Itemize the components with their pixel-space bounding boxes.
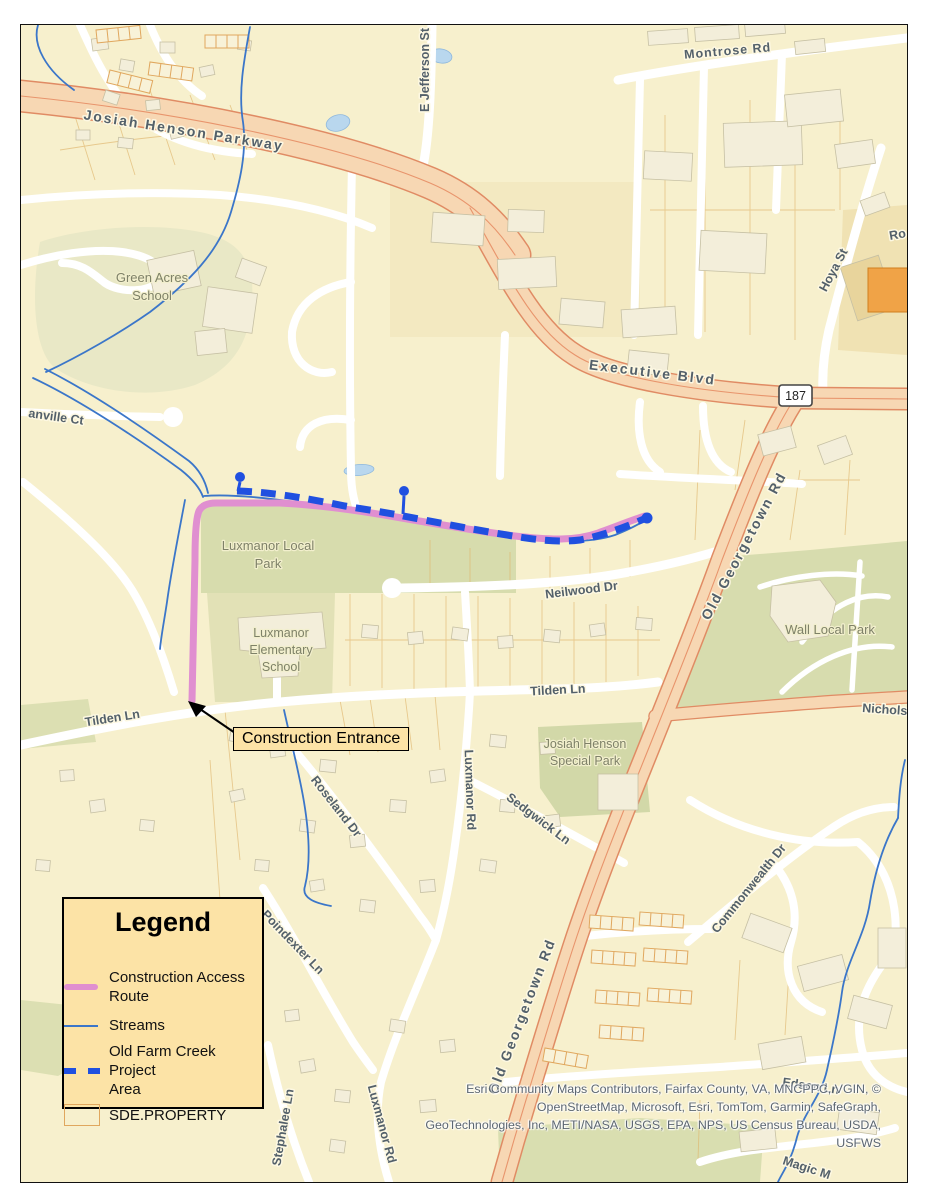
construction-route-swatch-icon bbox=[64, 984, 102, 990]
legend-title: Legend bbox=[64, 907, 262, 938]
legend-item-construction-access: Construction Access Route bbox=[64, 968, 262, 1006]
park-label-green-acres-2: School bbox=[132, 288, 172, 303]
legend-item-label: SDE.PROPERTY bbox=[109, 1106, 226, 1125]
legend-item-streams: Streams bbox=[64, 1016, 262, 1035]
park-label-luxmanor-park-2: Park bbox=[255, 556, 282, 571]
route-187-shield: 187 bbox=[779, 385, 812, 406]
park-label-luxmanor-elem-3: School bbox=[262, 660, 300, 674]
construction-entrance-label: Construction Entrance bbox=[242, 730, 400, 747]
construction-entrance-callout: Construction Entrance bbox=[233, 727, 409, 751]
attribution-line: GeoTechnologies, Inc, METI/NASA, USGS, E… bbox=[425, 1118, 881, 1132]
attribution-line: OpenStreetMap, Microsoft, Esri, TomTom, … bbox=[537, 1100, 881, 1114]
park-label-luxmanor-elem-2: Elementary bbox=[249, 643, 313, 657]
road-label-e-jefferson-st: E Jefferson St bbox=[418, 27, 432, 112]
route-187-label: 187 bbox=[785, 389, 806, 403]
legend: Legend Construction Access Route Streams… bbox=[62, 897, 264, 1109]
project-area-swatch-icon bbox=[64, 1068, 102, 1074]
legend-item-label: Construction Access Route bbox=[109, 968, 245, 1006]
legend-item-label: Streams bbox=[109, 1016, 165, 1035]
map-attribution: Esri Community Maps Contributors, Fairfa… bbox=[425, 1080, 881, 1152]
legend-item-label: Old Farm Creek Project Area bbox=[109, 1042, 262, 1099]
attribution-line: Esri Community Maps Contributors, Fairfa… bbox=[466, 1082, 881, 1096]
parcel-swatch-icon bbox=[64, 1104, 102, 1126]
orange-building bbox=[868, 268, 907, 312]
road-label-luxmanor-mid: Luxmanor Rd bbox=[462, 749, 479, 830]
legend-item-project-area: Old Farm Creek Project Area bbox=[64, 1042, 262, 1099]
park-label-jh-special-2: Special Park bbox=[550, 754, 621, 768]
park-label-jh-special-1: Josiah Henson bbox=[544, 737, 627, 751]
park-label-green-acres-1: Green Acres bbox=[116, 270, 189, 285]
attribution-line: USFWS bbox=[836, 1136, 881, 1150]
stream-swatch-icon bbox=[64, 1025, 102, 1027]
legend-item-sde-property: SDE.PROPERTY bbox=[64, 1104, 262, 1126]
park-label-luxmanor-elem-1: Luxmanor bbox=[253, 626, 309, 640]
road-label-ro-partial: Ro bbox=[888, 226, 907, 243]
map-export-page: 187 Montrose Rd Josiah Henson Parkway E … bbox=[0, 0, 927, 1200]
park-label-luxmanor-park-1: Luxmanor Local bbox=[222, 538, 315, 553]
park-label-wall-park: Wall Local Park bbox=[785, 622, 875, 637]
road-label-tilden-east: Tilden Ln bbox=[530, 682, 586, 699]
